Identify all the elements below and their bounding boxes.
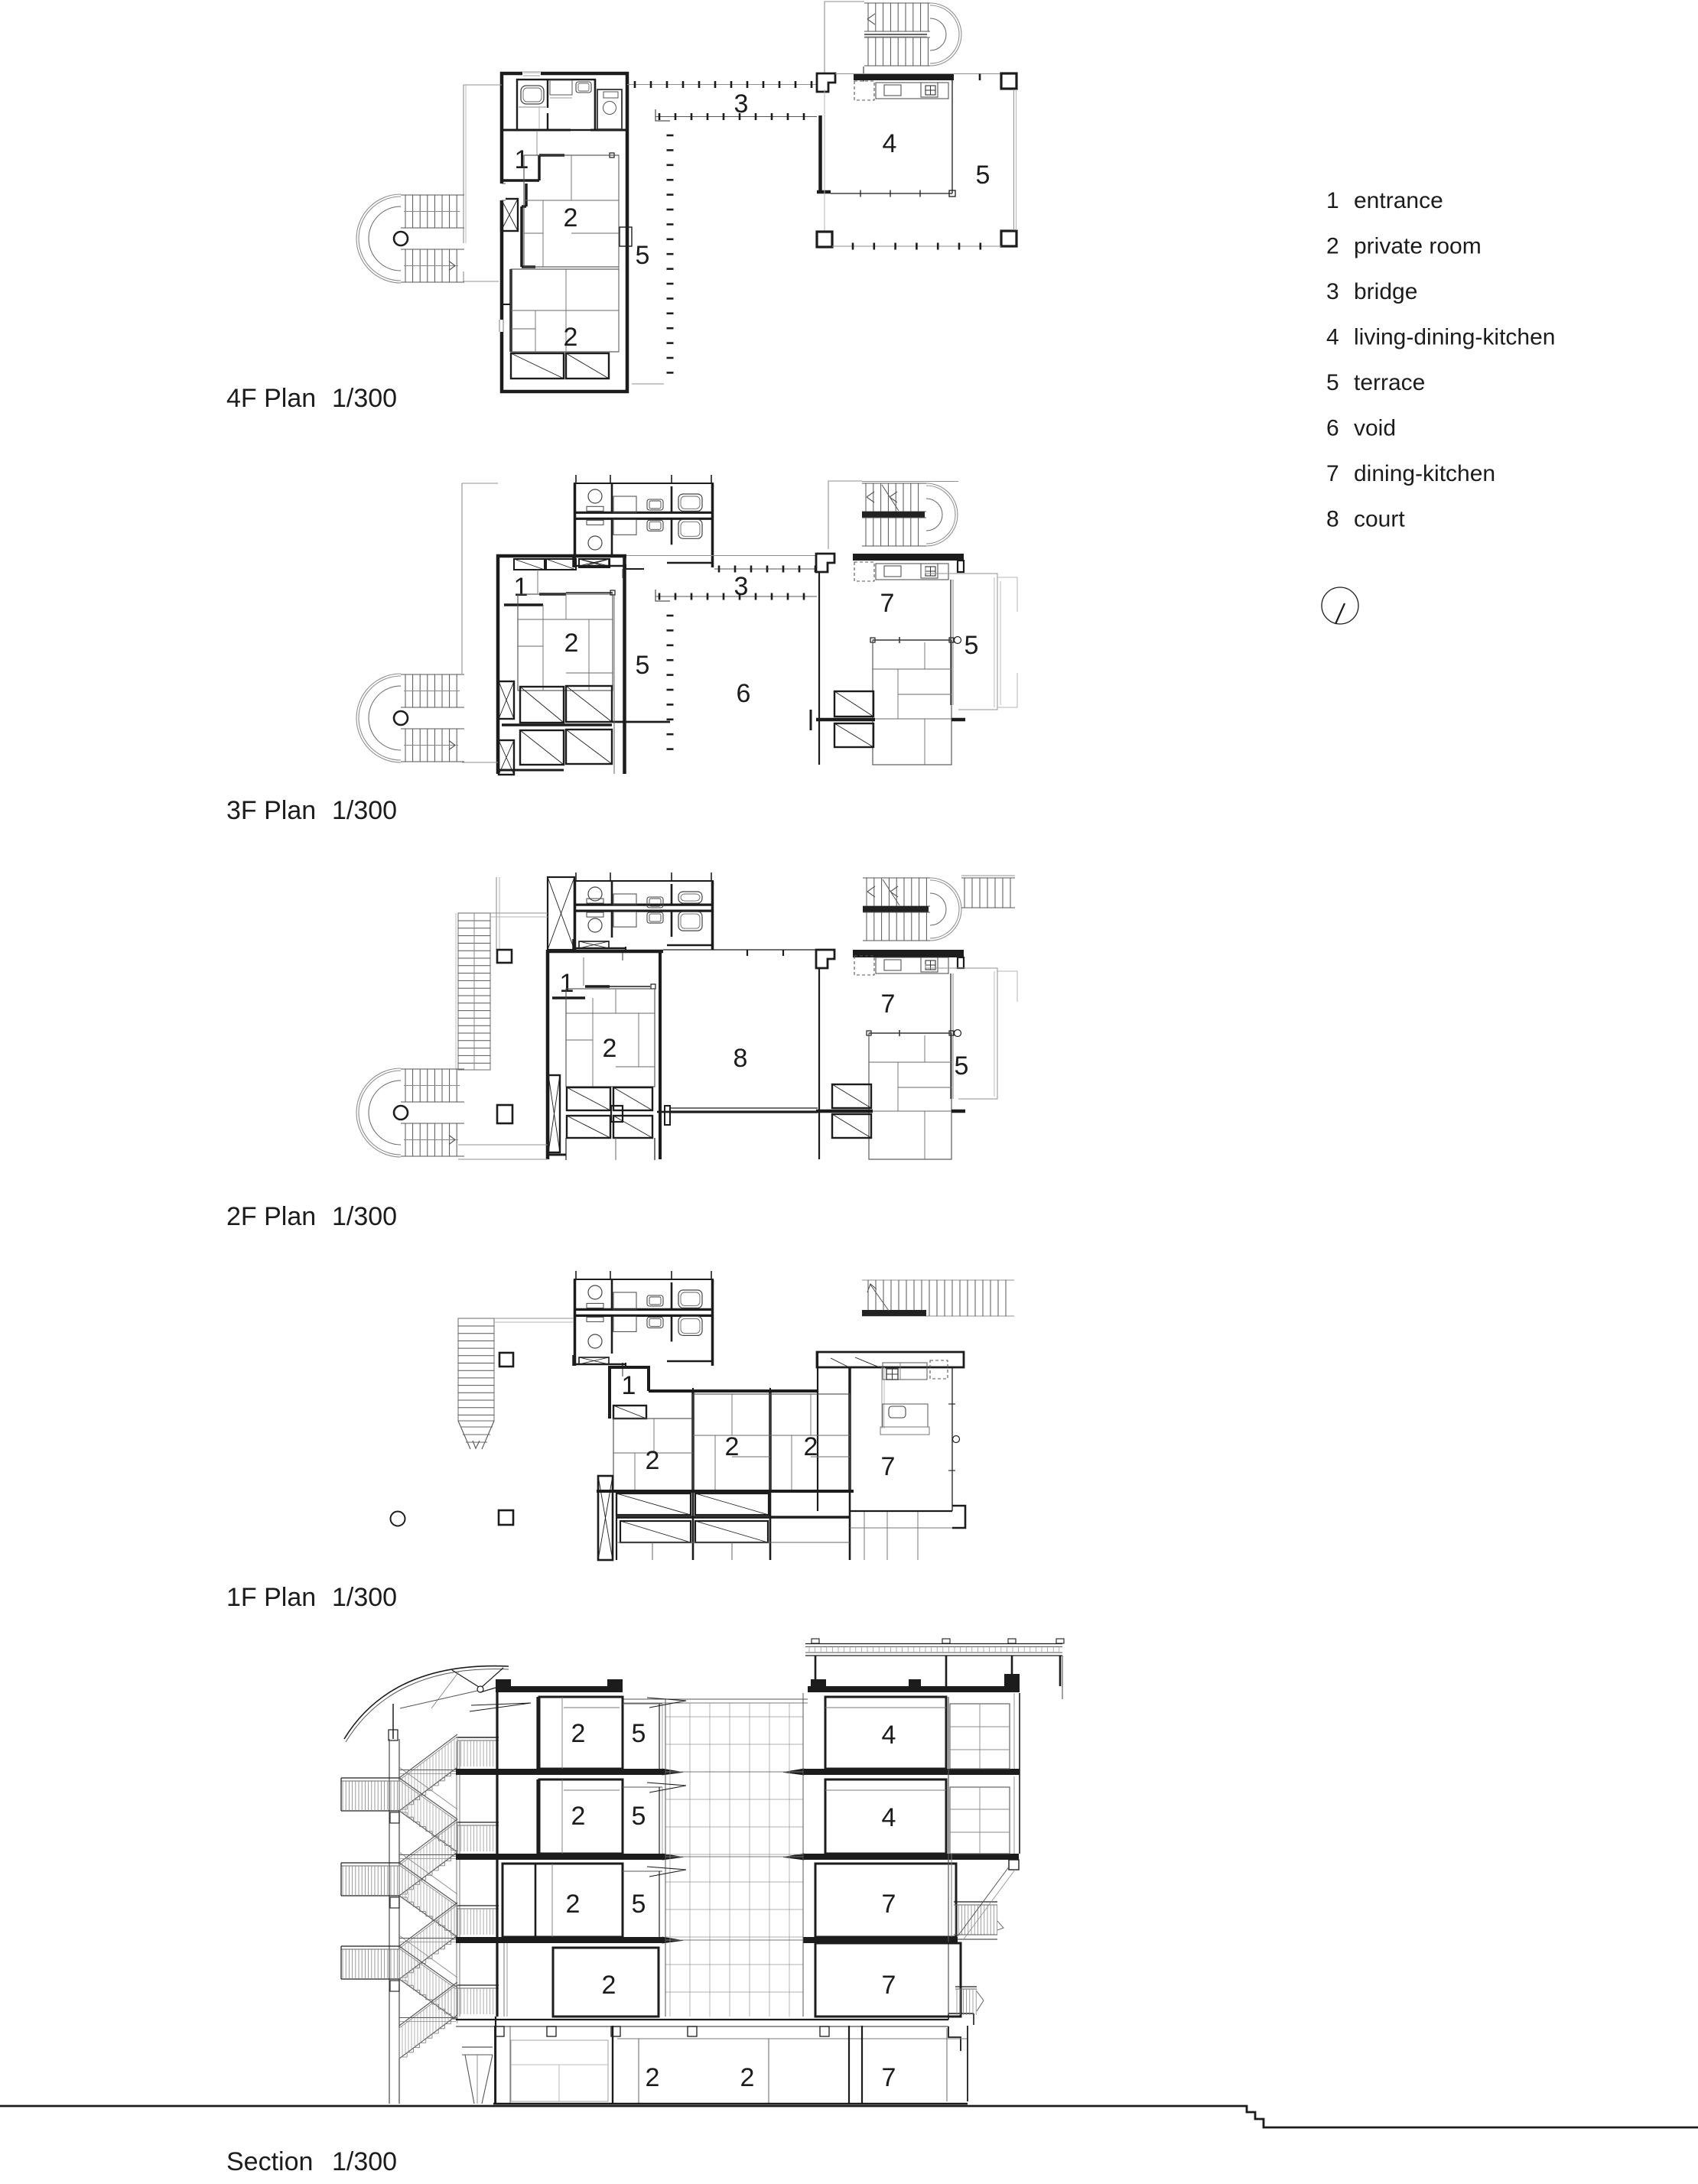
svg-text:4: 4 [882, 1803, 896, 1832]
svg-text:2: 2 [571, 1719, 586, 1748]
svg-text:3F Plan: 3F Plan [226, 796, 316, 825]
svg-text:2: 2 [725, 1432, 740, 1461]
svg-text:1/300: 1/300 [332, 2147, 397, 2176]
svg-text:8: 8 [734, 1044, 748, 1073]
svg-text:1: 1 [1326, 188, 1339, 213]
svg-text:5: 5 [1326, 370, 1339, 395]
svg-text:court: court [1354, 507, 1405, 532]
svg-text:1: 1 [514, 573, 529, 602]
svg-text:7: 7 [880, 589, 895, 618]
svg-text:1/300: 1/300 [332, 1202, 397, 1231]
svg-text:5: 5 [636, 651, 650, 680]
svg-text:7: 7 [881, 1452, 896, 1481]
svg-text:2: 2 [740, 2063, 755, 2092]
svg-text:1: 1 [622, 1371, 636, 1400]
svg-text:7: 7 [882, 1890, 896, 1919]
svg-text:6: 6 [737, 679, 751, 708]
svg-text:8: 8 [1326, 507, 1339, 532]
svg-text:entrance: entrance [1354, 188, 1443, 213]
svg-text:private room: private room [1354, 234, 1482, 259]
svg-text:5: 5 [636, 241, 650, 270]
svg-text:3: 3 [734, 572, 749, 601]
svg-text:2: 2 [646, 2063, 660, 2092]
svg-text:4: 4 [882, 1721, 896, 1750]
svg-text:5: 5 [976, 161, 990, 190]
svg-text:5: 5 [632, 1890, 646, 1919]
svg-text:1/300: 1/300 [332, 1583, 397, 1612]
svg-text:2: 2 [566, 1890, 581, 1919]
svg-text:1: 1 [515, 145, 529, 174]
svg-text:2: 2 [1326, 234, 1339, 259]
svg-text:2: 2 [564, 629, 579, 658]
svg-text:5: 5 [632, 1802, 646, 1831]
svg-text:6: 6 [1326, 416, 1339, 441]
svg-text:5: 5 [632, 1719, 646, 1748]
svg-text:1: 1 [560, 969, 574, 998]
svg-text:2: 2 [571, 1802, 586, 1831]
svg-text:Section: Section [226, 2147, 313, 2176]
svg-text:2: 2 [602, 1971, 616, 2000]
svg-text:4: 4 [1326, 325, 1339, 350]
svg-text:7: 7 [881, 990, 896, 1019]
svg-text:bridge: bridge [1354, 279, 1417, 304]
svg-text:1F Plan: 1F Plan [226, 1583, 316, 1612]
svg-text:7: 7 [1326, 461, 1339, 486]
svg-text:terrace: terrace [1354, 370, 1425, 395]
svg-text:2: 2 [646, 1446, 660, 1475]
svg-text:3: 3 [1326, 279, 1339, 304]
svg-text:2: 2 [564, 323, 578, 352]
svg-text:void: void [1354, 416, 1396, 441]
svg-text:2F Plan: 2F Plan [226, 1202, 316, 1231]
svg-text:7: 7 [882, 1971, 896, 2000]
svg-text:2: 2 [603, 1034, 617, 1063]
svg-text:dining-kitchen: dining-kitchen [1354, 461, 1495, 486]
svg-text:7: 7 [882, 2063, 896, 2092]
svg-text:living-dining-kitchen: living-dining-kitchen [1354, 325, 1555, 350]
svg-text:2: 2 [804, 1432, 818, 1461]
svg-text:1/300: 1/300 [332, 384, 397, 413]
svg-text:5: 5 [955, 1051, 969, 1081]
svg-text:4: 4 [883, 129, 897, 158]
svg-text:3: 3 [734, 89, 749, 119]
svg-text:2: 2 [564, 203, 578, 232]
svg-text:1/300: 1/300 [332, 796, 397, 825]
svg-text:4F Plan: 4F Plan [226, 384, 316, 413]
svg-text:5: 5 [964, 631, 979, 660]
